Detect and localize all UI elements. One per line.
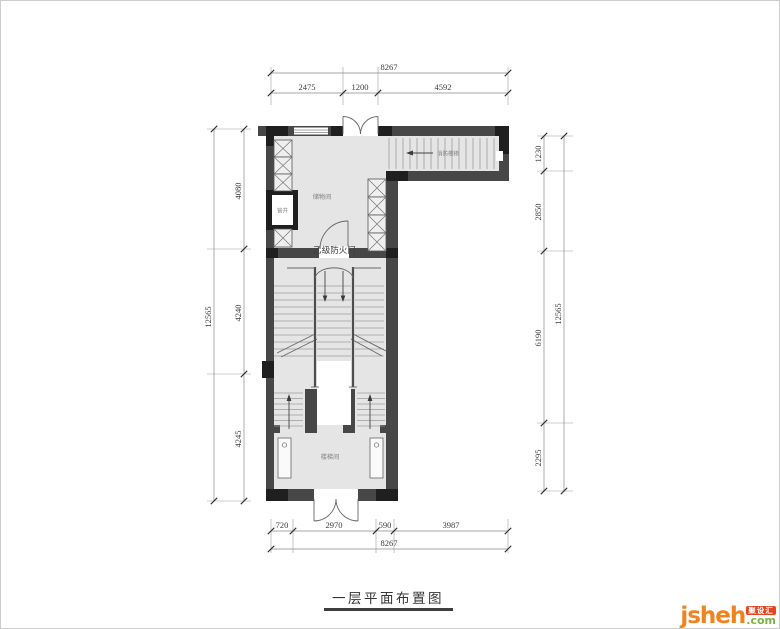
pipe-shaft-label: 管井 bbox=[277, 207, 288, 215]
dim-right-seg: 1230 bbox=[533, 146, 543, 163]
floor-plan-canvas: 管井 消防楼梯 储物间 乙级防火门 bbox=[1, 1, 779, 628]
dim-top-total: 8267 bbox=[381, 62, 398, 72]
dimensions-top: 8267 2475 1200 4592 bbox=[268, 62, 511, 105]
fire-door-tag: 乙级防火门 bbox=[313, 245, 356, 255]
dim-left-seg: 4080 bbox=[233, 183, 243, 200]
drawing-title-text: 一层平面布置图 bbox=[332, 591, 444, 606]
dim-bottom-total: 8267 bbox=[381, 538, 398, 548]
drawing-title: 一层平面布置图 bbox=[324, 591, 453, 610]
dim-right-total: 12565 bbox=[553, 303, 563, 324]
dim-right-seg: 2850 bbox=[533, 204, 543, 221]
dim-bottom-seg: 2970 bbox=[326, 520, 343, 530]
dimensions-right: 1230 2850 6190 2295 12565 bbox=[533, 133, 573, 494]
watermark-brand: jsheh bbox=[680, 608, 745, 626]
dim-top-seg: 4592 bbox=[435, 82, 452, 92]
dimensions-left: 12565 4080 4240 4245 bbox=[203, 126, 251, 504]
cabinets-right bbox=[368, 179, 386, 251]
floor-plan-page: 管井 消防楼梯 储物间 乙级防火门 bbox=[0, 0, 780, 629]
dim-bottom-seg: 720 bbox=[276, 520, 289, 530]
dim-bottom-seg: 590 bbox=[379, 520, 392, 530]
stair-hall-label: 楼梯间 bbox=[321, 453, 340, 461]
fire-stairs-label: 消防楼梯 bbox=[437, 150, 459, 158]
pipe-shaft: 管井 bbox=[266, 190, 298, 230]
stair-mid-landing bbox=[317, 361, 351, 425]
dim-left-seg: 4240 bbox=[233, 305, 243, 322]
watermark-tld: .com bbox=[746, 615, 776, 626]
dim-top-seg: 1200 bbox=[352, 82, 369, 92]
dim-left-seg: 4245 bbox=[233, 431, 243, 448]
storage-room-label: 储物间 bbox=[313, 193, 332, 201]
cabinet-left-lower bbox=[274, 229, 292, 247]
dim-right-seg: 6190 bbox=[533, 330, 543, 347]
cabinets-left bbox=[274, 140, 292, 191]
dimensions-bottom: 720 2970 590 3987 8267 bbox=[268, 519, 511, 553]
dim-top-seg: 2475 bbox=[299, 82, 316, 92]
dim-right-seg: 2295 bbox=[533, 450, 543, 467]
dim-left-total: 12565 bbox=[203, 306, 213, 327]
dim-bottom-seg: 3987 bbox=[443, 520, 460, 530]
site-watermark: jsheh 聚设汇 .com bbox=[680, 606, 776, 627]
